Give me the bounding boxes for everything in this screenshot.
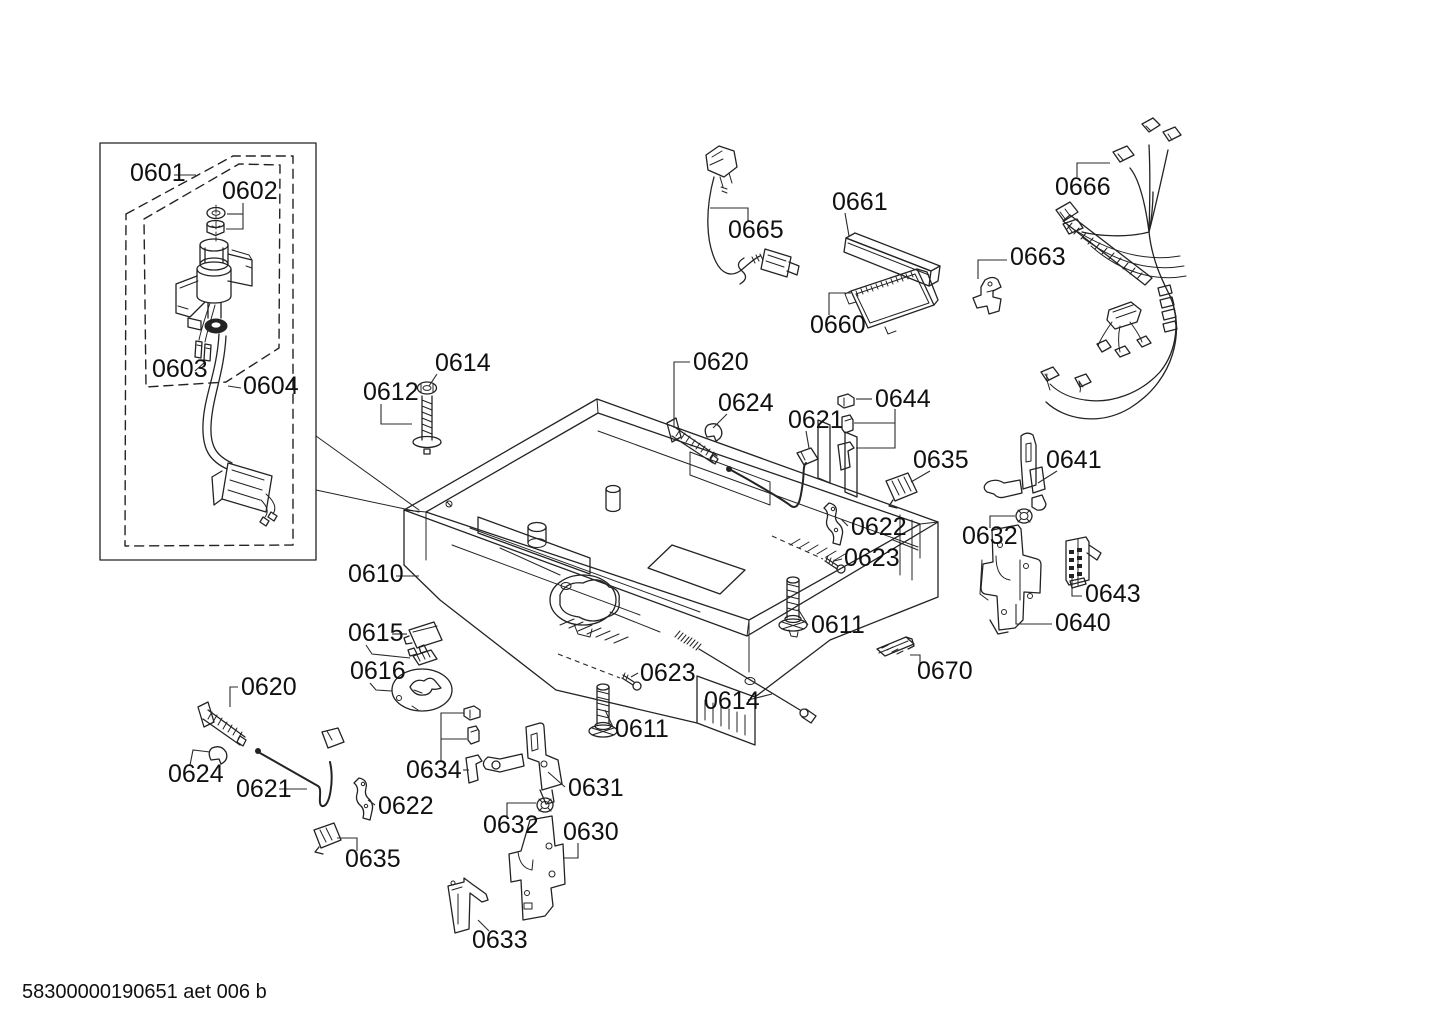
bracket-0622-bottom-drawing bbox=[354, 778, 373, 820]
parts-diagram-page: 0601060206030604061006120614062006240621… bbox=[0, 0, 1442, 1019]
stud-0611-right-drawing bbox=[779, 577, 807, 637]
leader-line-0622-bottom bbox=[368, 800, 375, 805]
part-label-0661: 0661 bbox=[832, 188, 888, 216]
part-label-0644: 0644 bbox=[875, 385, 931, 413]
mains-cable-0665-drawing bbox=[706, 146, 799, 284]
part-label-0603: 0603 bbox=[152, 355, 208, 383]
part-label-0611-right: 0611 bbox=[811, 611, 865, 639]
part-label-0620-bottom: 0620 bbox=[241, 673, 297, 701]
hinge-0631-drawing bbox=[483, 723, 562, 804]
part-label-0611-bottom: 0611 bbox=[615, 715, 669, 743]
part-label-0616: 0616 bbox=[350, 657, 406, 685]
part-label-0612: 0612 bbox=[363, 378, 419, 406]
part-label-0621-bottom: 0621 bbox=[236, 775, 292, 803]
stud-0611-bottom-drawing bbox=[589, 684, 617, 737]
part-label-0622-bottom: 0622 bbox=[378, 792, 434, 820]
part-label-0614-bottom: 0614 bbox=[704, 687, 760, 715]
part-label-0632-right: 0632 bbox=[962, 522, 1018, 550]
rod-0620-bottom-drawing bbox=[198, 702, 246, 746]
part-label-0630: 0630 bbox=[563, 818, 619, 846]
leader-line-0604 bbox=[228, 386, 241, 388]
dashed-leader-line-0623-right bbox=[772, 536, 823, 559]
part-label-0666: 0666 bbox=[1055, 173, 1111, 201]
part-label-0601: 0601 bbox=[130, 159, 186, 187]
part-label-0643: 0643 bbox=[1085, 580, 1141, 608]
sensor-0621-top-drawing bbox=[726, 448, 818, 507]
part-label-0633: 0633 bbox=[472, 926, 528, 954]
bracket-0641-drawing bbox=[984, 433, 1046, 510]
leader-line-0631 bbox=[548, 772, 565, 787]
part-label-0624-top: 0624 bbox=[718, 389, 774, 417]
leader-line-0644 bbox=[856, 409, 895, 448]
bracket-0663-drawing bbox=[973, 278, 1001, 315]
part-label-0634: 0634 bbox=[406, 756, 462, 784]
screw-0623-right-drawing bbox=[825, 556, 845, 573]
part-label-0635-right: 0635 bbox=[913, 446, 969, 474]
part-label-0670: 0670 bbox=[917, 657, 973, 685]
switch-0615-drawing bbox=[404, 622, 442, 665]
part-label-0622-right: 0622 bbox=[851, 513, 907, 541]
clip-set-0634-drawing bbox=[464, 706, 482, 783]
part-label-0632-bottom: 0632 bbox=[483, 811, 539, 839]
part-label-0635-bottom: 0635 bbox=[345, 845, 401, 873]
part-label-0604: 0604 bbox=[243, 372, 299, 400]
leader-line-0602 bbox=[226, 203, 243, 229]
part-label-0640: 0640 bbox=[1055, 609, 1111, 637]
part-label-0621-top: 0621 bbox=[788, 406, 844, 434]
part-label-0641: 0641 bbox=[1046, 446, 1102, 474]
document-number: 58300000190651 aet 006 b bbox=[22, 981, 267, 1003]
leader-line-0620-bottom bbox=[230, 687, 238, 707]
dashed-leader-line-0623-bottom bbox=[558, 654, 620, 678]
part-label-0623-right: 0623 bbox=[844, 544, 900, 572]
part-label-0624-bottom: 0624 bbox=[168, 760, 224, 788]
clip-0635-bottom-drawing bbox=[314, 823, 341, 854]
leader-line-0623-bottom bbox=[631, 673, 638, 677]
leader-line-0634 bbox=[441, 713, 464, 762]
part-label-0623-bottom: 0623 bbox=[640, 659, 696, 687]
part-label-0620-top: 0620 bbox=[693, 348, 749, 376]
part-label-0665: 0665 bbox=[728, 216, 784, 244]
leader-line-0663 bbox=[978, 260, 1007, 279]
leader-line-0612 bbox=[381, 404, 412, 424]
parts-diagram-canvas: 0601060206030604061006120614062006240621… bbox=[0, 0, 1442, 1019]
part-label-0614-top: 0614 bbox=[435, 349, 491, 377]
part-label-0663: 0663 bbox=[1010, 243, 1066, 271]
aquastop-inset-box bbox=[100, 143, 316, 560]
cover-strip-0661-drawing bbox=[844, 233, 940, 286]
leader-line-0661 bbox=[845, 213, 849, 236]
part-label-0602: 0602 bbox=[222, 177, 278, 205]
rod-0620-top-drawing bbox=[667, 418, 718, 464]
screw-0623-bottom-drawing bbox=[622, 673, 641, 690]
part-label-0660: 0660 bbox=[810, 311, 866, 339]
clip-0635-right-drawing bbox=[886, 473, 917, 508]
part-label-0610: 0610 bbox=[348, 560, 404, 588]
grommet-0632-right-drawing bbox=[1016, 509, 1032, 523]
rail-0670-drawing bbox=[877, 637, 914, 656]
part-label-0615: 0615 bbox=[348, 619, 404, 647]
reference-lines bbox=[316, 436, 419, 512]
base-frame-drawing bbox=[404, 399, 938, 745]
bracket-0622-right-drawing bbox=[824, 503, 843, 545]
part-label-0631: 0631 bbox=[568, 774, 624, 802]
